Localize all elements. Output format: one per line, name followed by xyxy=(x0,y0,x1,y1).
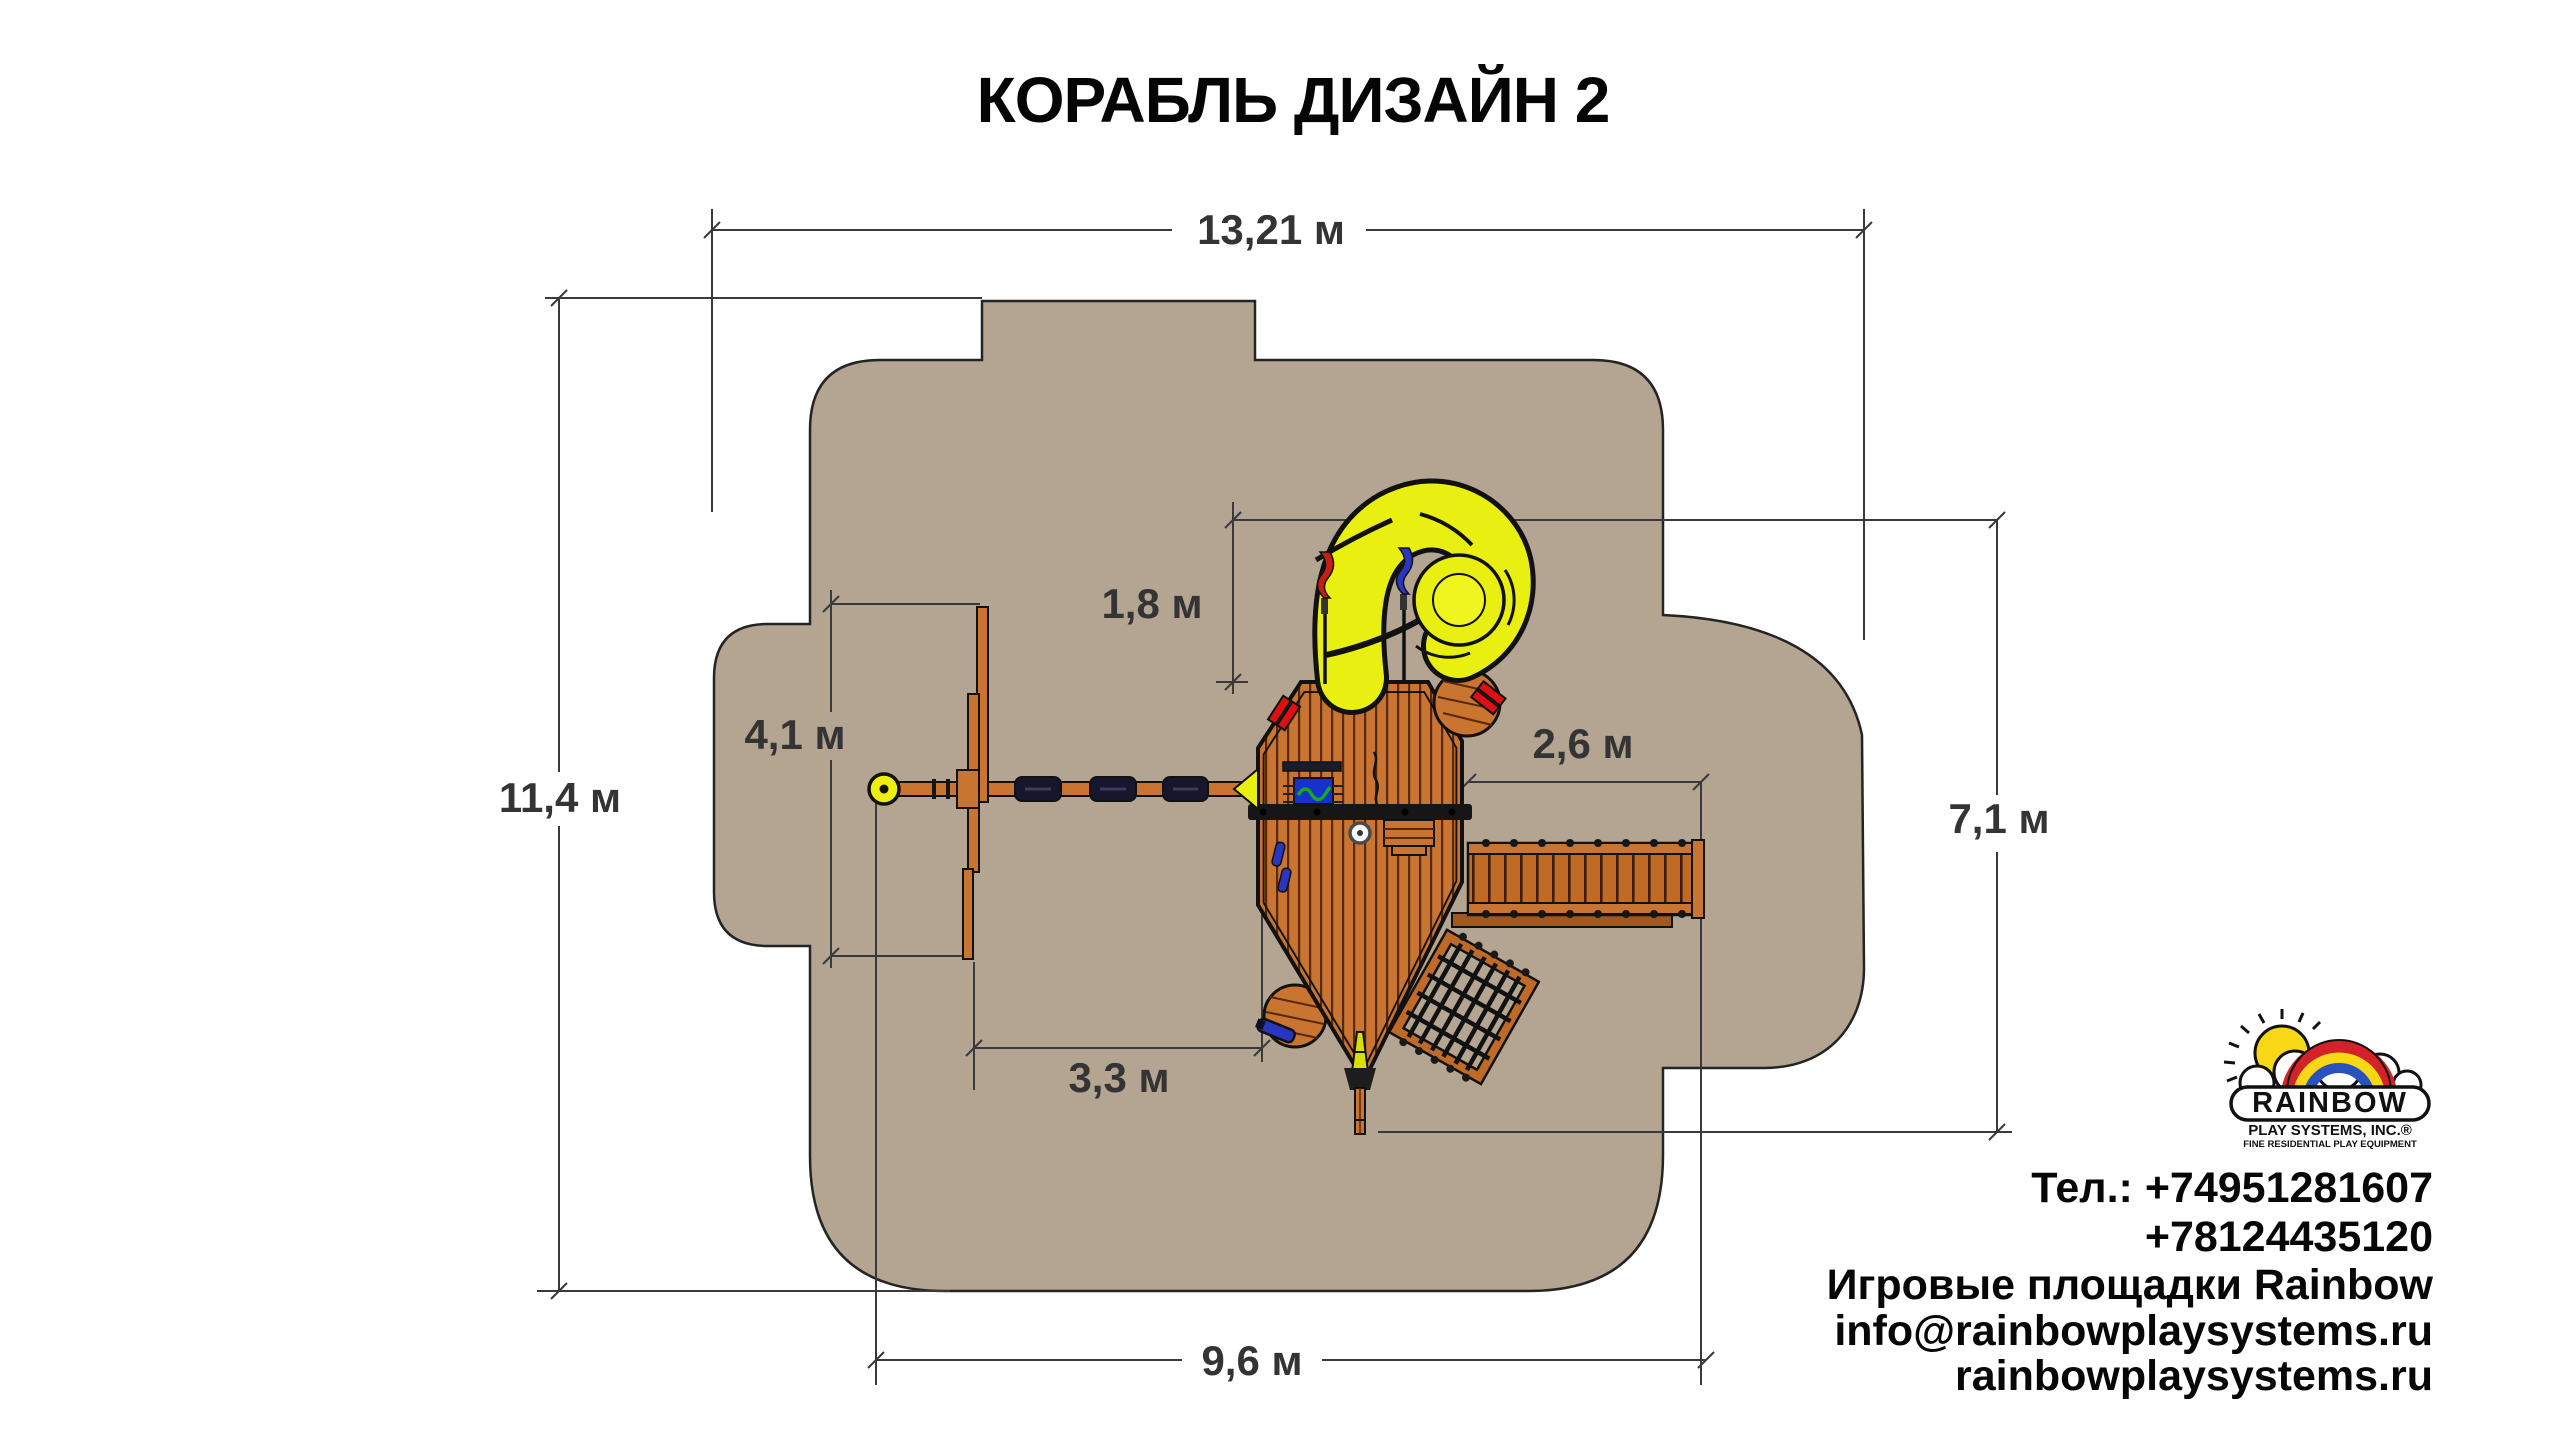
deck-crossbeam xyxy=(1248,804,1472,820)
label-total-depth: 11,4 м xyxy=(499,774,621,821)
contact-company: Игровые площадки Rainbow xyxy=(1827,1261,2434,1309)
deck-bench xyxy=(1283,762,1341,771)
plan-drawing: 13,21 м 11,4 м 1,8 м 4,1 м 2,6 м 7,1 м 3… xyxy=(0,0,2560,1451)
label-swing-to-ship: 3,3 м xyxy=(1068,1054,1169,1101)
label-equipment-width: 9,6 м xyxy=(1201,1337,1302,1384)
contact-website: rainbowplaysystems.ru xyxy=(1955,1352,2433,1400)
page-title: КОРАБЛЬ ДИЗАЙН 2 xyxy=(977,63,1610,136)
contact-phone-2: +78124435120 xyxy=(2145,1213,2433,1261)
contact-phone-1: Тел.: +74951281607 xyxy=(2031,1164,2433,1212)
deck-hatch xyxy=(1384,820,1434,855)
logo-brand-text: RAINBOW xyxy=(2252,1087,2408,1119)
label-bridge-span: 2,6 м xyxy=(1532,720,1633,767)
playground-plan-page: 13,21 м 11,4 м 1,8 м 4,1 м 2,6 м 7,1 м 3… xyxy=(0,0,2560,1451)
bridge-walkway xyxy=(1452,839,1704,927)
contact-email: info@rainbowplaysystems.ru xyxy=(1834,1307,2433,1355)
label-slide-clearance: 1,8 м xyxy=(1101,580,1202,627)
label-swing-wall: 4,1 м xyxy=(744,711,845,758)
logo-tagline-text: FINE RESIDENTIAL PLAY EQUIPMENT xyxy=(2243,1139,2417,1150)
logo-subtitle-text: PLAY SYSTEMS, INC.® xyxy=(2248,1122,2412,1139)
contact-block: Тел.: +74951281607 +78124435120 Игровые … xyxy=(1827,1164,2434,1400)
rainbow-logo: RAINBOW PLAY SYSTEMS, INC.® FINE RESIDEN… xyxy=(2224,1009,2429,1150)
label-right-depth: 7,1 м xyxy=(1948,795,2049,842)
label-total-width: 13,21 м xyxy=(1197,206,1345,253)
